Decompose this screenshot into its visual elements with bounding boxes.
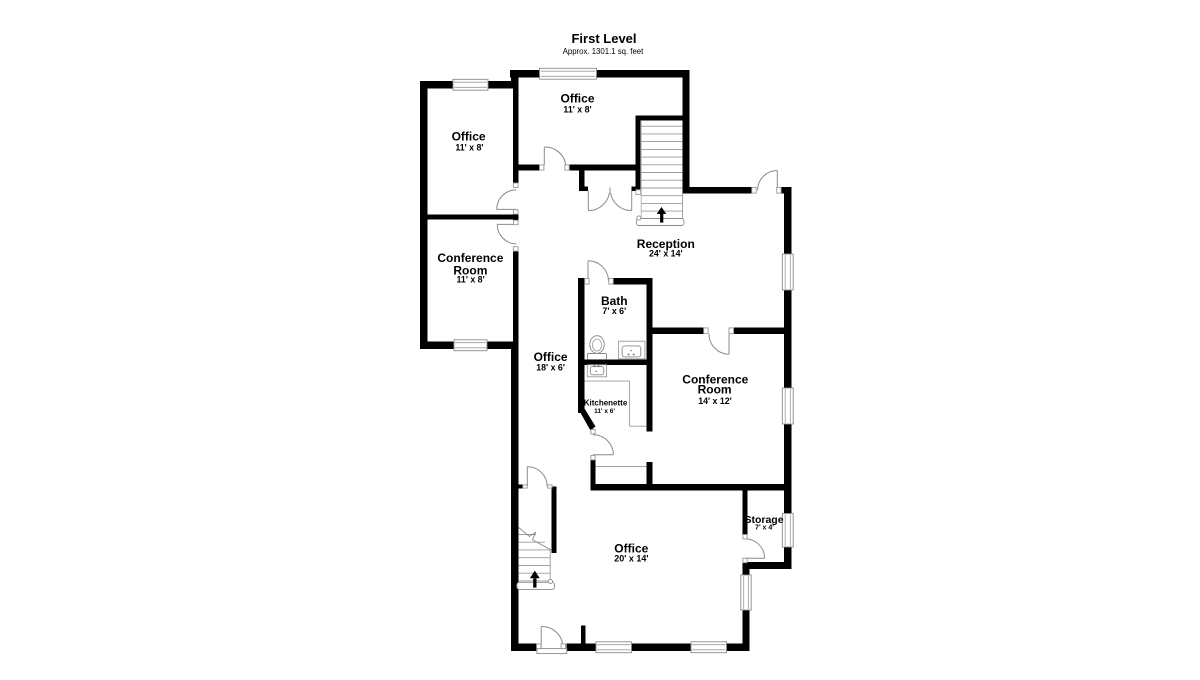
svg-text:Room: Room (698, 383, 732, 397)
svg-text:First Level: First Level (571, 31, 636, 46)
svg-text:11' x 8': 11' x 8' (455, 143, 483, 153)
svg-text:11' x 8': 11' x 8' (457, 275, 485, 285)
svg-text:Office: Office (452, 129, 486, 143)
svg-text:11' x 8': 11' x 8' (563, 105, 591, 115)
svg-text:11' x 6': 11' x 6' (594, 408, 615, 415)
svg-text:Approx. 1301.1 sq. feet: Approx. 1301.1 sq. feet (563, 47, 644, 56)
svg-text:Office: Office (560, 91, 594, 105)
svg-text:24' x 14': 24' x 14' (649, 249, 683, 259)
svg-text:18' x 6': 18' x 6' (536, 362, 565, 372)
svg-text:7' x 4': 7' x 4' (755, 524, 774, 531)
svg-text:7' x 6': 7' x 6' (602, 306, 626, 316)
svg-text:14' x 12': 14' x 12' (698, 396, 732, 406)
svg-text:20' x 14': 20' x 14' (614, 554, 648, 564)
svg-text:Kitchenette: Kitchenette (584, 398, 628, 407)
